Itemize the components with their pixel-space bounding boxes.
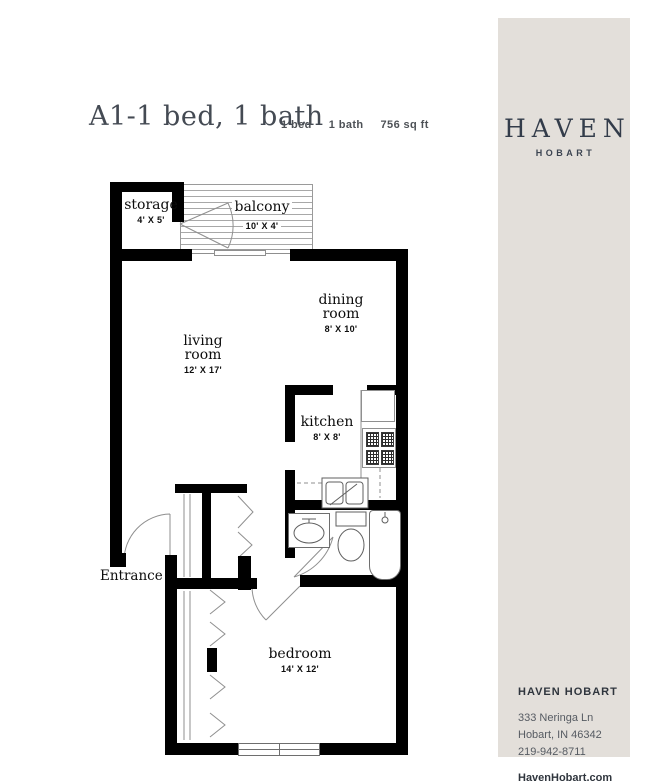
room-label-living: living room 12' X 17' bbox=[173, 334, 233, 375]
bathtub-faucet bbox=[382, 512, 388, 523]
kitchen-sink bbox=[322, 478, 368, 508]
toilet bbox=[336, 512, 366, 561]
room-label-bedroom: bedroom 14' X 12' bbox=[260, 647, 340, 674]
plumbing-fixture-linework bbox=[0, 0, 650, 757]
room-label-balcony: balcony 10' X 4' bbox=[212, 198, 312, 234]
room-label-storage: storage 4' X 5' bbox=[116, 198, 186, 225]
stove-burner bbox=[366, 432, 379, 447]
stove-burner bbox=[366, 450, 379, 465]
contact-website: HavenHobart.com bbox=[518, 772, 630, 784]
stove-burner bbox=[381, 450, 394, 465]
entrance-label: Entrance bbox=[100, 568, 163, 584]
room-label-dining: dining room 8' X 10' bbox=[311, 293, 371, 334]
vanity-sink bbox=[294, 519, 324, 543]
stove-burner bbox=[381, 432, 394, 447]
room-label-kitchen: kitchen 8' X 8' bbox=[287, 415, 367, 442]
bedroom-window bbox=[238, 743, 320, 756]
